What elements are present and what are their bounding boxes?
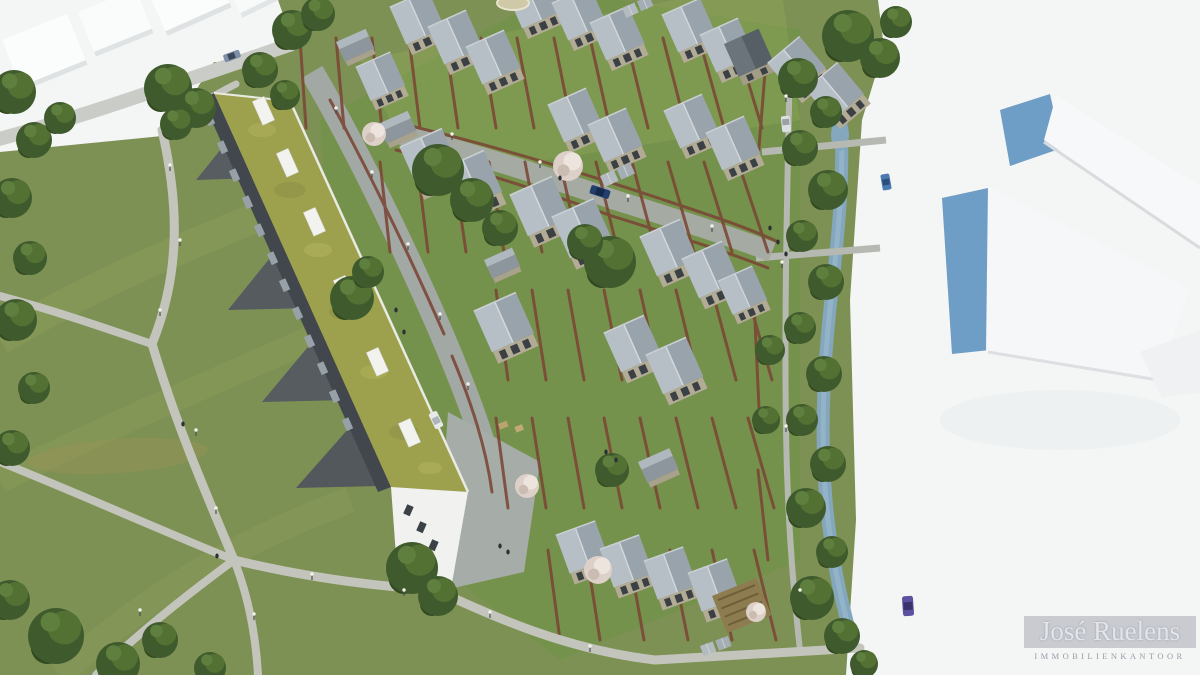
tree <box>28 608 84 664</box>
tree <box>806 356 842 392</box>
tree <box>242 52 278 88</box>
tree <box>860 38 900 78</box>
tree <box>824 618 860 654</box>
tree <box>160 108 192 140</box>
logo-name: José Ruelens <box>1028 617 1192 645</box>
tree <box>755 335 785 365</box>
tree <box>782 130 818 166</box>
context-zone-right <box>846 0 1200 675</box>
tree <box>790 576 834 620</box>
van <box>781 116 792 133</box>
tree <box>352 256 384 288</box>
tree <box>44 102 76 134</box>
ground-shadow <box>940 390 1180 450</box>
tree <box>880 6 912 38</box>
tree <box>482 210 518 246</box>
car <box>902 596 914 617</box>
scene-canvas <box>0 0 1200 675</box>
blossom-tree <box>553 151 583 181</box>
blossom-tree <box>362 122 386 146</box>
tree <box>786 404 818 436</box>
tree <box>786 220 818 252</box>
tree <box>270 80 300 110</box>
tree <box>595 453 629 487</box>
tree <box>752 406 780 434</box>
logo-subtitle: IMMOBILIENKANTOOR <box>1024 651 1196 661</box>
tree <box>18 372 50 404</box>
trampoline <box>497 0 529 10</box>
blossom-tree <box>584 556 612 584</box>
tree <box>784 312 816 344</box>
tree <box>808 170 848 210</box>
watermark-logo: José Ruelens IMMOBILIENKANTOOR <box>1024 616 1196 661</box>
tree <box>786 488 826 528</box>
tree <box>810 446 846 482</box>
tree <box>567 224 603 260</box>
tree <box>418 576 458 616</box>
blossom-tree <box>515 474 539 498</box>
tree <box>808 264 844 300</box>
tree <box>810 96 842 128</box>
logo-band: José Ruelens <box>1024 616 1196 648</box>
aerial-development-rendering: José Ruelens IMMOBILIENKANTOOR <box>0 0 1200 675</box>
tree <box>778 58 818 98</box>
tree <box>816 536 848 568</box>
blossom-tree <box>746 602 766 622</box>
tree <box>13 241 47 275</box>
tree <box>142 622 178 658</box>
